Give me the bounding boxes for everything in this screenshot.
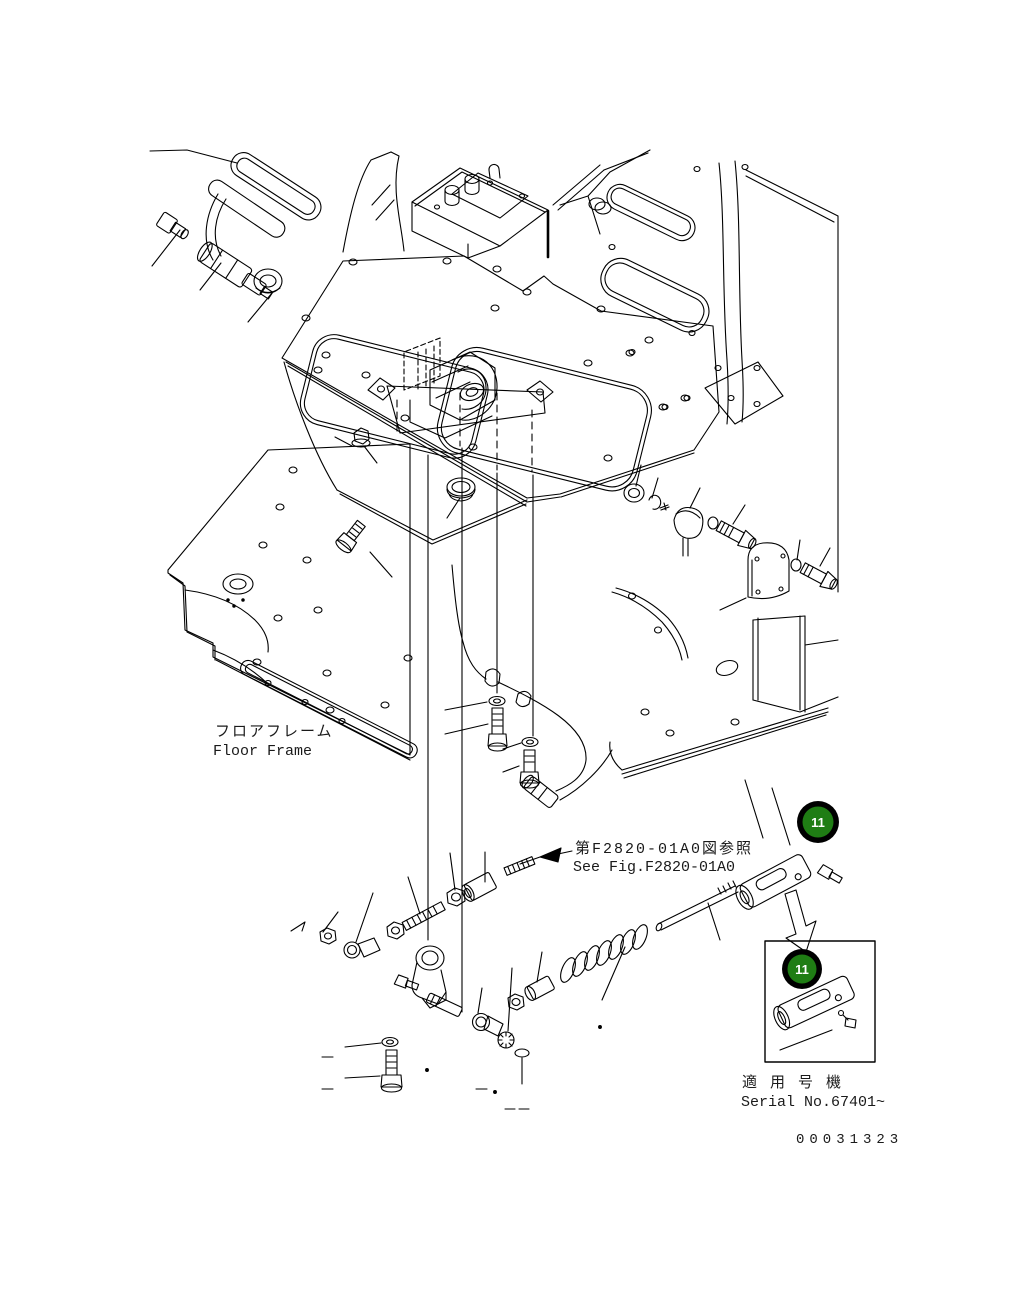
floor-grommet xyxy=(447,478,475,518)
cover-plate xyxy=(748,543,789,599)
bolt xyxy=(345,1038,402,1093)
callout-balloon-1[interactable]: 11 xyxy=(797,801,839,843)
construction-lines xyxy=(397,393,533,1012)
control-rod xyxy=(655,881,738,940)
diagram-sheet: 11 11 フロアフレーム Floor Frame 第F2820-01A0図参照… xyxy=(0,0,1036,1292)
hex-nut xyxy=(387,922,404,939)
strap-belt xyxy=(150,148,326,260)
mounting-plate xyxy=(282,256,719,544)
floor-frame-label-jp: フロアフレーム xyxy=(215,724,334,741)
small-bolt xyxy=(817,864,843,885)
linkage-cluster xyxy=(291,852,738,1109)
boot-cap xyxy=(674,508,703,557)
console-box xyxy=(412,153,648,258)
threaded-stud xyxy=(504,857,535,876)
serial-label-en: Serial No.67401~ xyxy=(741,1094,885,1111)
threaded-rod xyxy=(402,902,445,931)
reference-pointer xyxy=(520,848,572,864)
washer xyxy=(515,1049,529,1057)
rod-end xyxy=(473,1014,504,1037)
sensor-assembly xyxy=(152,212,282,322)
clip xyxy=(660,503,669,510)
hex-nut xyxy=(320,928,336,944)
reference-label-en: See Fig.F2820-01A0 xyxy=(573,859,735,876)
spring xyxy=(558,923,651,1000)
plate-holes xyxy=(302,258,689,461)
bolt xyxy=(799,560,841,593)
bushing xyxy=(624,484,644,502)
underfloor-hardware xyxy=(445,565,612,809)
exploded-view-drawing: 11 11 フロアフレーム Floor Frame 第F2820-01A0図参照… xyxy=(0,0,1036,1292)
bolt xyxy=(488,708,507,751)
washer xyxy=(708,517,718,529)
variant-detail-box xyxy=(765,941,875,1062)
pin-bolt xyxy=(394,975,419,992)
callout-balloon-2[interactable]: 11 xyxy=(782,949,822,989)
grease-fitting xyxy=(780,1011,856,1051)
right-cab-frame xyxy=(560,150,838,712)
floor-frame-label-en: Floor Frame xyxy=(213,743,312,760)
washer xyxy=(791,559,801,571)
valve-hidden-lines xyxy=(404,338,440,390)
spacer-tube xyxy=(523,976,555,1003)
serial-label-jp: 適 用 号 機 xyxy=(742,1073,843,1092)
bell-crank xyxy=(412,946,446,1008)
break-marks xyxy=(322,1026,601,1109)
bushing-parts-row xyxy=(624,465,840,610)
pointer-wedge xyxy=(291,922,305,931)
reference-label-jp: 第F2820-01A0図参照 xyxy=(575,839,753,858)
variant-arrow xyxy=(785,890,816,952)
floor-frame-plate xyxy=(168,444,420,760)
snap-ring xyxy=(649,495,661,509)
connector xyxy=(520,773,559,808)
clevis-rod xyxy=(426,993,463,1017)
callout-number: 11 xyxy=(795,962,809,977)
callout-number: 11 xyxy=(811,815,825,830)
rod-end xyxy=(344,938,380,958)
bolt xyxy=(334,518,369,555)
serrated-nut xyxy=(498,1032,514,1048)
cab-pillar xyxy=(343,152,404,252)
doc-number: 00031323 xyxy=(796,1132,903,1148)
